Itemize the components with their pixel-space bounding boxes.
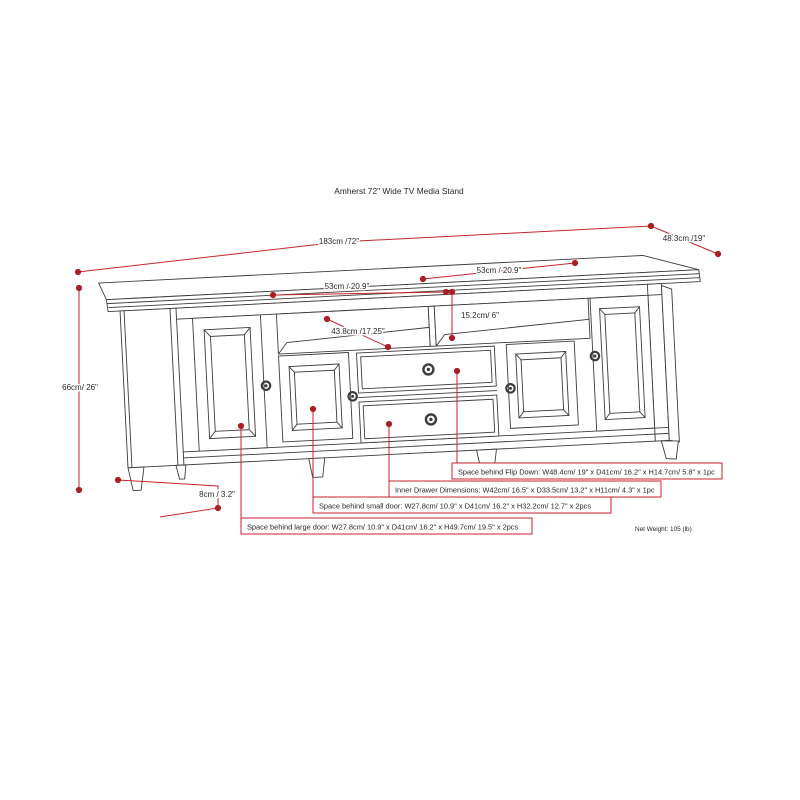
page-title: Amherst 72" Wide TV Media Stand [334, 186, 464, 196]
dim-leg-label: 8cm / 3.2" [199, 490, 235, 499]
small-door-left [279, 352, 359, 442]
net-weight-label: Net Weight: 105 (lb) [635, 526, 692, 533]
annotation-small-door: Space behind small door: W27.8cm/ 10.9" … [313, 497, 611, 513]
annotation-large-door: Space behind large door: W27.8cm/ 10.9" … [241, 518, 532, 534]
annotation-flip-down-text: Space behind Flip Down: W48.4cm/ 19" x D… [458, 468, 715, 477]
product-dimension-diagram: Amherst 72" Wide TV Media Stand [0, 0, 800, 800]
dim-width-label: 183cm /72" [319, 237, 359, 246]
dim-height-label: 66cm/ 26" [62, 383, 98, 392]
annotation-large-door-text: Space behind large door: W27.8cm/ 10.9" … [247, 523, 519, 532]
small-door-right [504, 341, 578, 428]
tv-stand-illustration [99, 253, 710, 492]
annotation-inner-drawer-text: Inner Drawer Dimensions: W42cm/ 16.5" x … [395, 486, 655, 495]
annotation-inner-drawer: Inner Drawer Dimensions: W42cm/ 16.5" x … [389, 481, 661, 497]
drawer-bottom [359, 395, 499, 443]
dim-shelf-left-label: 53cm / 20.9" [325, 282, 370, 291]
dim-shelf-right-label: 53cm / 20.9" [477, 266, 522, 275]
annotation-small-door-text: Space behind small door: W27.8cm/ 10.9" … [319, 502, 591, 511]
drawer-top [356, 346, 496, 393]
open-shelf-right [434, 298, 590, 346]
diagram-canvas: Amherst 72" Wide TV Media Stand [0, 0, 800, 800]
large-door-right [588, 295, 655, 431]
dim-shelf-depth-label: 43.8cm /17.25" [331, 327, 385, 336]
large-door-left [193, 315, 274, 452]
annotation-flip-down: Space behind Flip Down: W48.4cm/ 19" x D… [452, 463, 722, 479]
dim-shelf-height-label: 15.2cm/ 6" [461, 311, 499, 320]
dim-depth-label: 48.3cm /19" [663, 234, 706, 243]
